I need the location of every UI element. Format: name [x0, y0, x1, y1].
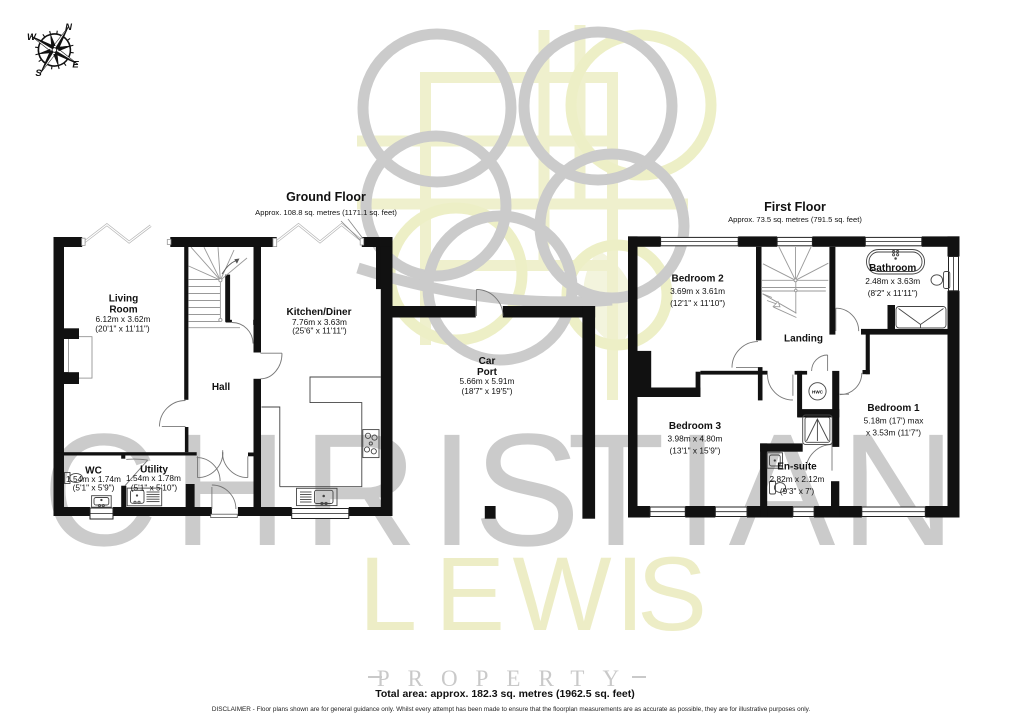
- svg-text:Car: Car: [479, 356, 496, 367]
- svg-text:(12'1" x 11'10"): (12'1" x 11'10"): [670, 298, 725, 308]
- svg-text:Landing: Landing: [784, 333, 823, 344]
- svg-text:x 3.53m (11'7"): x 3.53m (11'7"): [866, 428, 921, 438]
- svg-text:6.12m x 3.62m: 6.12m x 3.62m: [96, 314, 151, 324]
- svg-text:2.48m x 3.63m: 2.48m x 3.63m: [865, 276, 920, 286]
- svg-text:En-suite: En-suite: [777, 462, 817, 473]
- svg-text:W: W: [27, 32, 37, 43]
- svg-text:(8'2" x 11'11"): (8'2" x 11'11"): [868, 288, 918, 298]
- svg-text:S: S: [35, 68, 42, 79]
- svg-text:(13'1" x 15'9"): (13'1" x 15'9"): [669, 446, 720, 456]
- svg-text:E: E: [72, 60, 79, 71]
- svg-text:Bedroom 2: Bedroom 2: [671, 274, 724, 285]
- svg-text:N: N: [65, 22, 73, 33]
- svg-text:(20'1" x 11'11"): (20'1" x 11'11"): [95, 324, 150, 334]
- svg-text:Bathroom: Bathroom: [869, 263, 916, 274]
- svg-text:3.69m x 3.61m: 3.69m x 3.61m: [670, 286, 725, 296]
- svg-text:S: S: [637, 536, 707, 653]
- svg-text:Ground Floor: Ground Floor: [286, 190, 366, 204]
- svg-text:5.18m (17') max: 5.18m (17') max: [864, 416, 925, 426]
- svg-text:E: E: [435, 536, 505, 653]
- svg-text:W: W: [512, 536, 611, 653]
- svg-text:L: L: [359, 536, 417, 653]
- svg-text:Bedroom 3: Bedroom 3: [669, 421, 722, 432]
- svg-text:(18'7" x 19'5"): (18'7" x 19'5"): [461, 386, 512, 396]
- svg-text:Total area: approx. 182.3 sq.: Total area: approx. 182.3 sq. metres (19…: [375, 688, 635, 700]
- svg-text:First Floor: First Floor: [764, 200, 826, 214]
- svg-text:Approx. 73.5 sq. metres (791.5: Approx. 73.5 sq. metres (791.5 sq. feet): [728, 215, 862, 224]
- svg-text:(5'1" x 5'10"): (5'1" x 5'10"): [131, 482, 178, 492]
- svg-text:(5'1" x 5'9"): (5'1" x 5'9"): [73, 482, 115, 492]
- svg-text:Hall: Hall: [212, 382, 231, 393]
- svg-text:3.98m x 4.80m: 3.98m x 4.80m: [668, 434, 723, 444]
- svg-text:Bedroom 1: Bedroom 1: [867, 403, 920, 414]
- svg-text:(25'6" x 11'11"): (25'6" x 11'11"): [292, 325, 347, 335]
- svg-text:HWC: HWC: [812, 390, 824, 395]
- svg-text:Living: Living: [109, 294, 138, 305]
- svg-text:(9'3" x 7'): (9'3" x 7'): [780, 486, 814, 496]
- svg-text:DISCLAIMER - Floor plans show: DISCLAIMER - Floor plans shown are for g…: [212, 706, 811, 713]
- svg-text:5.66m x 5.91m: 5.66m x 5.91m: [460, 376, 515, 386]
- svg-text:2.82m x 2.12m: 2.82m x 2.12m: [770, 474, 825, 484]
- svg-text:Approx. 108.8 sq. metres (1171: Approx. 108.8 sq. metres (1171.1 sq. fee…: [255, 208, 397, 217]
